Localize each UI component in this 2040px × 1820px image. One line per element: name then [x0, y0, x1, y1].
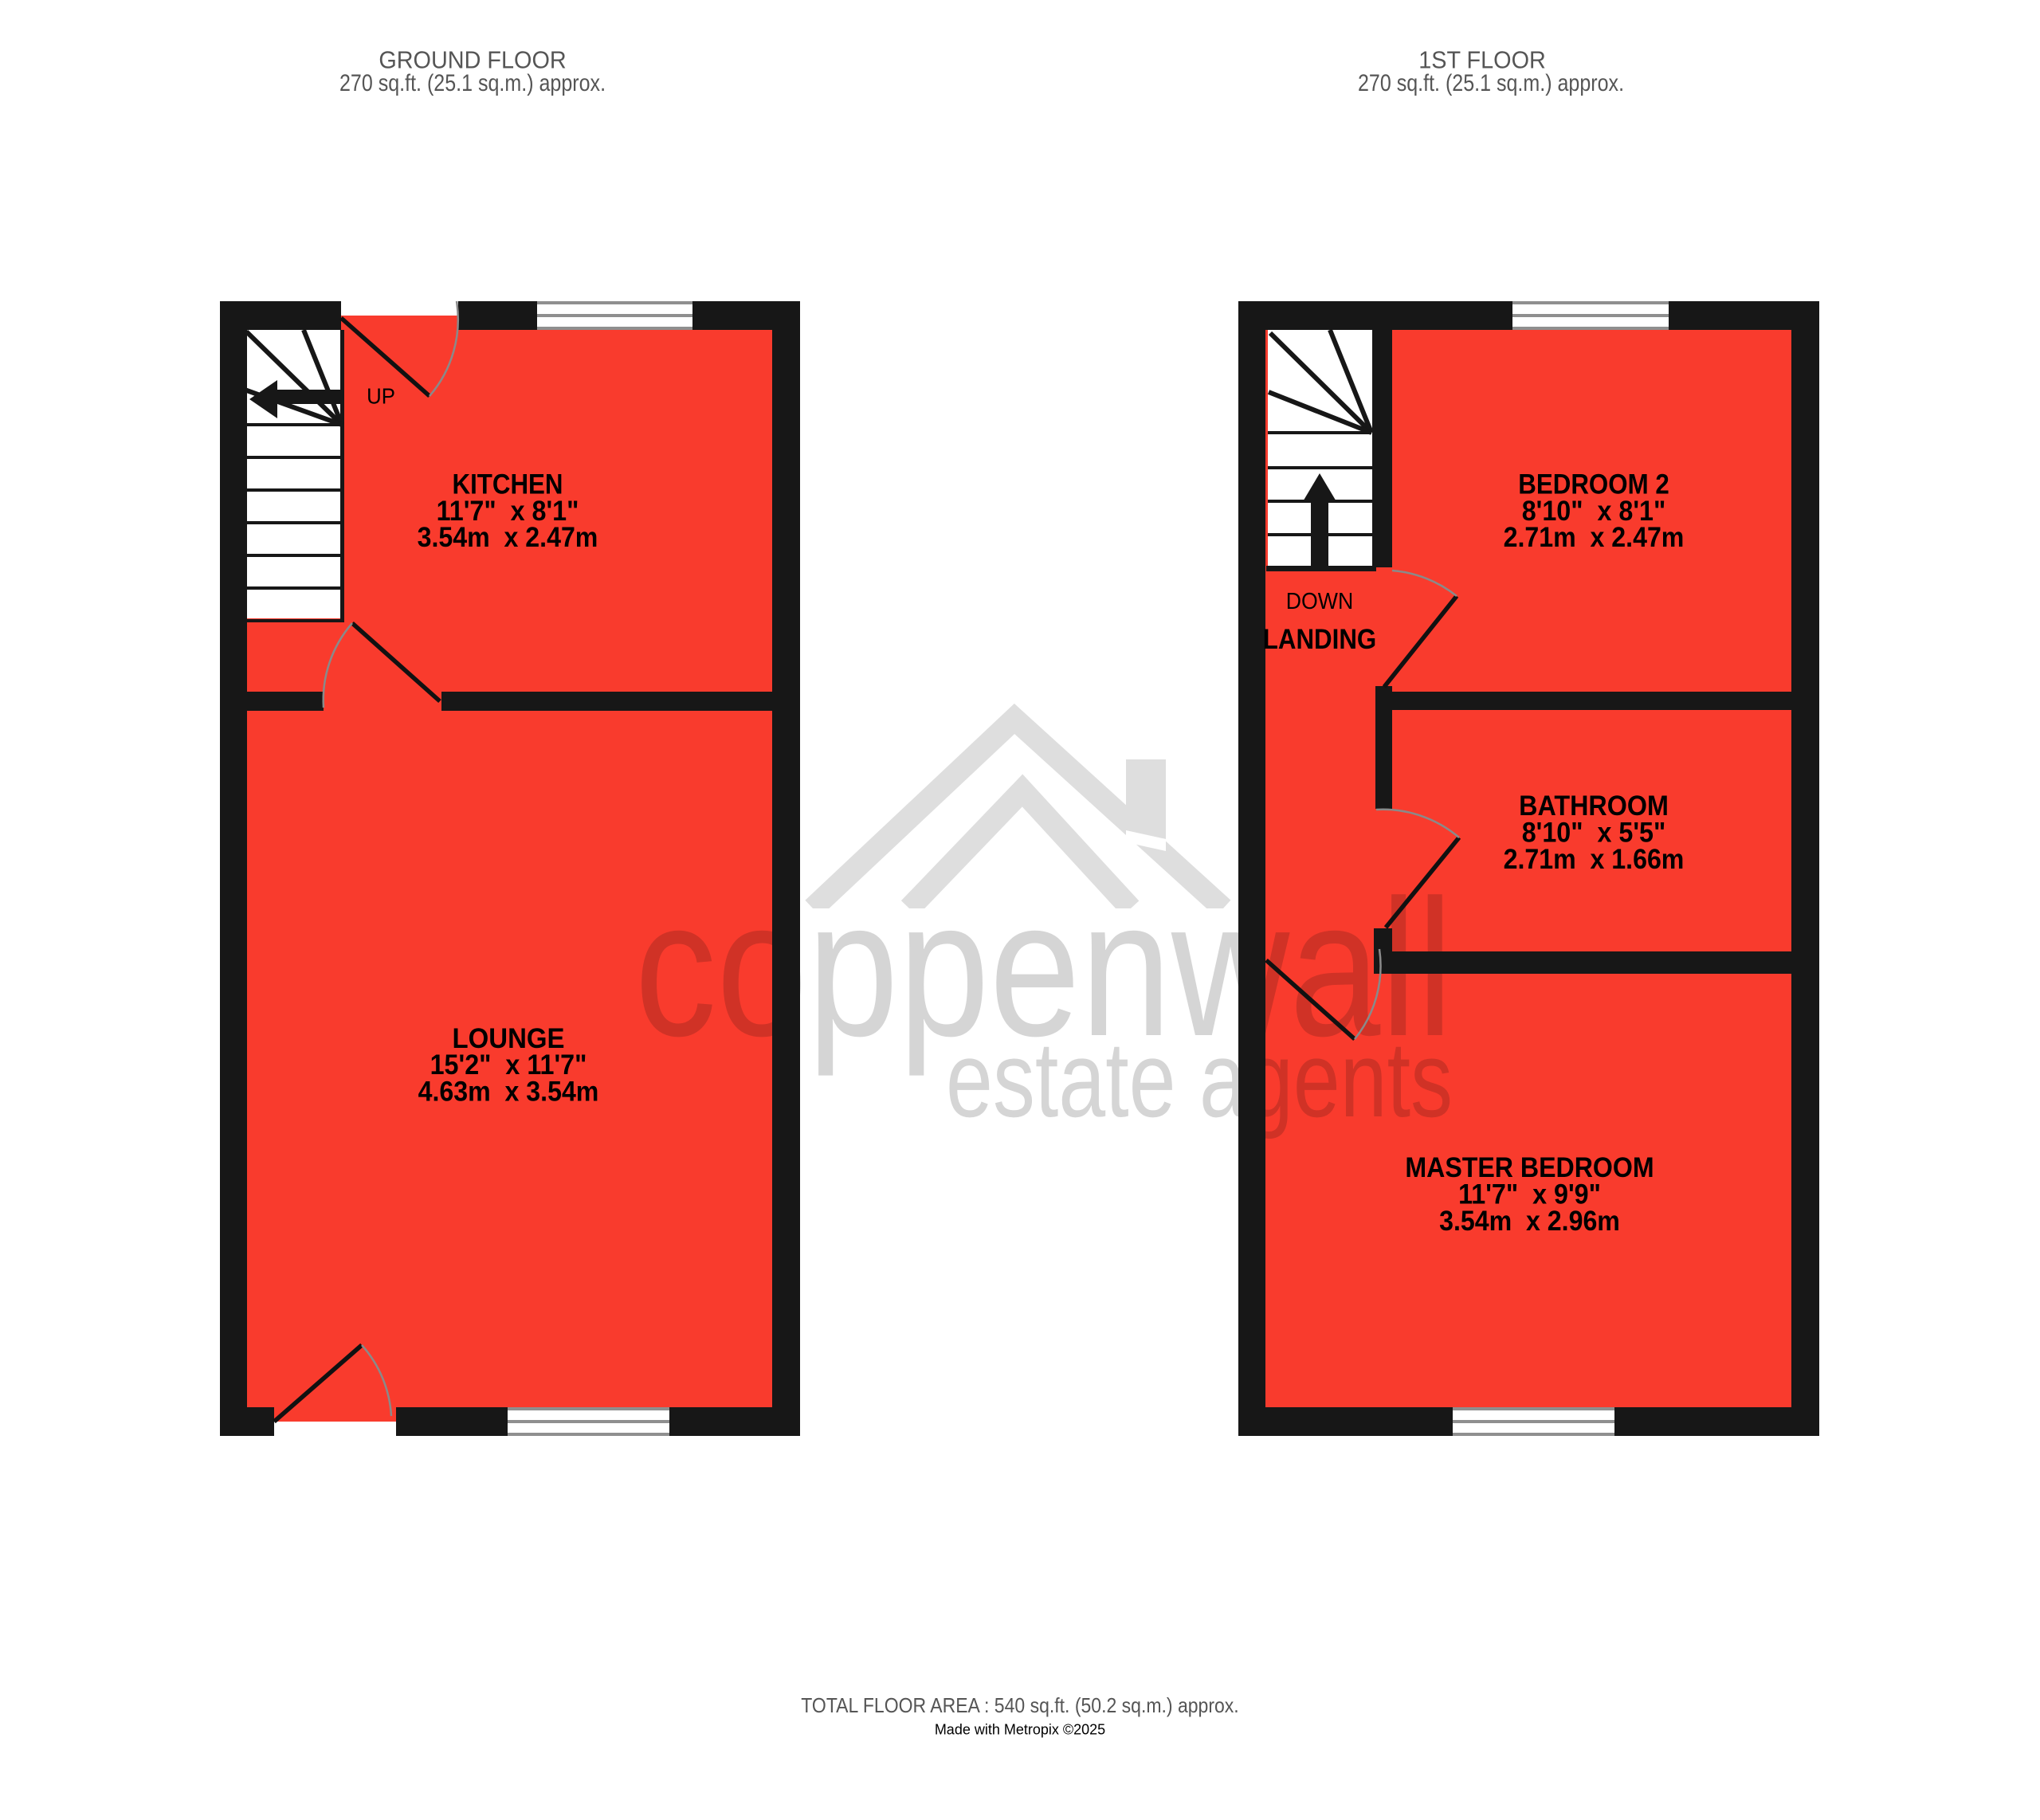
svg-text:DOWN: DOWN	[1286, 588, 1353, 614]
svg-text:estate agents: estate agents	[946, 1019, 1453, 1139]
svg-text:270 sq.ft. (25.1 sq.m.) approx: 270 sq.ft. (25.1 sq.m.) approx.	[339, 69, 606, 96]
svg-text:TOTAL FLOOR AREA : 540 sq.ft.: TOTAL FLOOR AREA : 540 sq.ft. (50.2 sq.m…	[801, 1695, 1238, 1718]
svg-text:270 sq.ft. (25.1 sq.m.) approx: 270 sq.ft. (25.1 sq.m.) approx.	[1358, 69, 1624, 96]
svg-text:3.54m x 2.47m: 3.54m x 2.47m	[418, 523, 598, 554]
svg-text:3.54m x 2.96m: 3.54m x 2.96m	[1439, 1206, 1620, 1238]
svg-text:LANDING: LANDING	[1263, 624, 1377, 655]
svg-text:4.63m x 3.54m: 4.63m x 3.54m	[418, 1077, 599, 1108]
svg-text:2.71m x 1.66m: 2.71m x 1.66m	[1504, 845, 1685, 876]
svg-text:Made with Metropix ©2025: Made with Metropix ©2025	[935, 1722, 1105, 1738]
svg-text:2.71m x 2.47m: 2.71m x 2.47m	[1504, 523, 1685, 554]
svg-text:UP: UP	[367, 384, 395, 409]
